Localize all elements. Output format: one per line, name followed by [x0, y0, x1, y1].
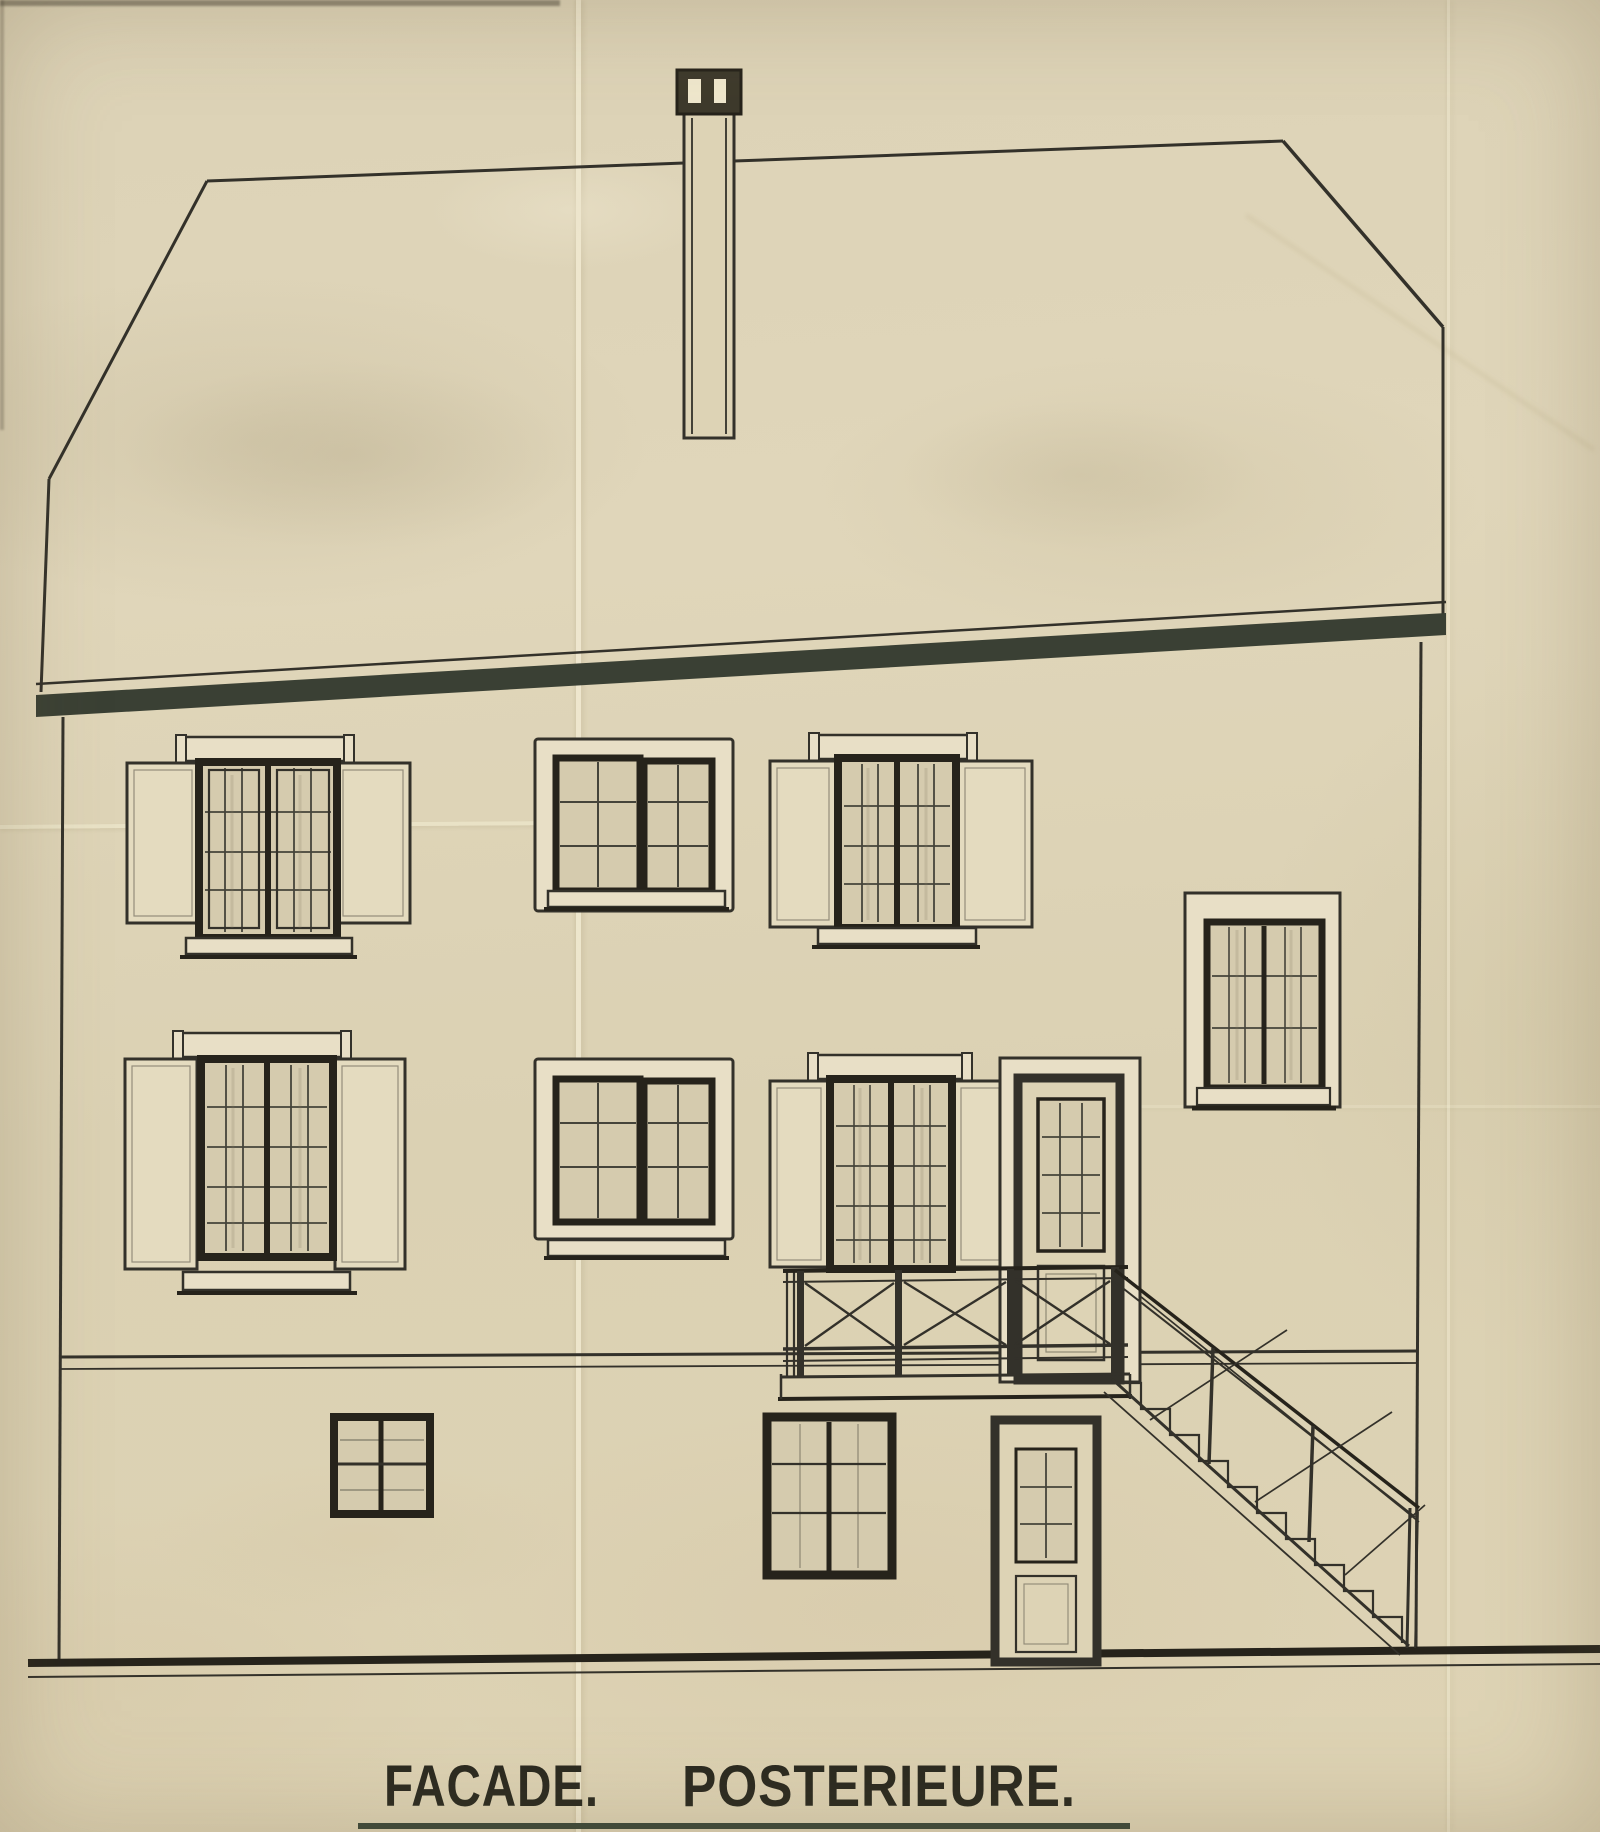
railing-post: [797, 1271, 804, 1377]
window-sill: [1197, 1088, 1330, 1105]
shutter-left: [125, 1059, 197, 1269]
basement-window-center: [767, 1417, 892, 1575]
shutter-left: [770, 1081, 828, 1267]
chimney-cap-vent: [688, 79, 701, 103]
railing-post: [895, 1270, 902, 1376]
shutter-right: [958, 761, 1032, 927]
window-sill: [548, 1240, 725, 1256]
drawing-title: FACADE. POSTERIEURE.: [358, 1754, 1130, 1832]
window-sill: [186, 938, 352, 954]
roof-edge-left: [41, 479, 49, 692]
chimney-cap-vent: [714, 79, 726, 103]
ground-line: [28, 1649, 1600, 1663]
lintel-end-cap: [808, 1053, 818, 1081]
roof-hip-left: [49, 181, 207, 479]
window-upper-left: [127, 735, 410, 957]
stair-stringer-lower: [1104, 1392, 1400, 1655]
exterior-staircase: [1104, 1270, 1425, 1655]
window-upper-center: [535, 739, 733, 911]
roof-ridge-left-segment: [207, 163, 684, 181]
roof-hip-right: [1283, 141, 1443, 327]
window-upper-right: [770, 733, 1032, 947]
shutter-right: [336, 763, 410, 923]
stair-stringer: [1112, 1379, 1409, 1646]
stair-steps: [1112, 1383, 1402, 1643]
ground-line-thin: [28, 1664, 1600, 1677]
lintel-end-cap: [341, 1031, 351, 1059]
stair-lattice: [1345, 1505, 1425, 1575]
shutter-left: [127, 763, 199, 923]
stair-lattice: [1255, 1412, 1392, 1502]
basement: [334, 1417, 1097, 1662]
window-sill: [818, 928, 976, 944]
window-lower-center: [535, 1059, 733, 1258]
chimney-cap: [677, 70, 741, 114]
title-word-posterieure: POSTERIEURE.: [682, 1754, 1076, 1819]
window-lower-right-french: [770, 1053, 1006, 1269]
basement-window-small: [334, 1417, 430, 1514]
wall-edge-left: [59, 717, 63, 1662]
stair-handrail: [1115, 1270, 1419, 1508]
shutter-left: [770, 761, 836, 927]
basement-door: [995, 1420, 1097, 1662]
roof-ridge-right-segment: [734, 141, 1283, 161]
lintel-end-cap: [809, 733, 819, 761]
lintel-end-cap: [962, 1053, 972, 1081]
shutter-right: [954, 1081, 1006, 1267]
stair-post: [1209, 1348, 1213, 1464]
eaves-fascia-band: [36, 613, 1446, 717]
title-underline: [358, 1823, 1130, 1829]
window-stair-landing: [1185, 893, 1340, 1108]
stair-end-post: [1407, 1508, 1410, 1648]
stair-lattice: [1140, 1296, 1419, 1522]
railing-post: [1007, 1269, 1014, 1375]
balcony-slab-bottom: [778, 1396, 1132, 1399]
lintel-end-cap: [967, 733, 977, 761]
window-sill: [548, 891, 725, 907]
wall-edge-right: [1416, 642, 1421, 1648]
rear-facade-elevation: FACADE. POSTERIEURE.: [0, 0, 1600, 1832]
window-lintel: [177, 1033, 349, 1057]
window-lower-left: [125, 1031, 405, 1293]
shutter-right: [335, 1059, 405, 1269]
stair-lattice: [1150, 1330, 1287, 1420]
lintel-end-cap: [176, 735, 186, 763]
chimney: [677, 70, 741, 438]
window-sill: [183, 1272, 350, 1290]
lintel-end-cap: [173, 1031, 183, 1059]
window-lintel: [180, 737, 350, 761]
title-word-facade: FACADE.: [384, 1754, 599, 1819]
scanned-elevation-drawing: FACADE. POSTERIEURE.: [0, 0, 1600, 1832]
roof: [36, 141, 1446, 717]
lintel-end-cap: [344, 735, 354, 763]
stair-post: [1309, 1426, 1313, 1542]
